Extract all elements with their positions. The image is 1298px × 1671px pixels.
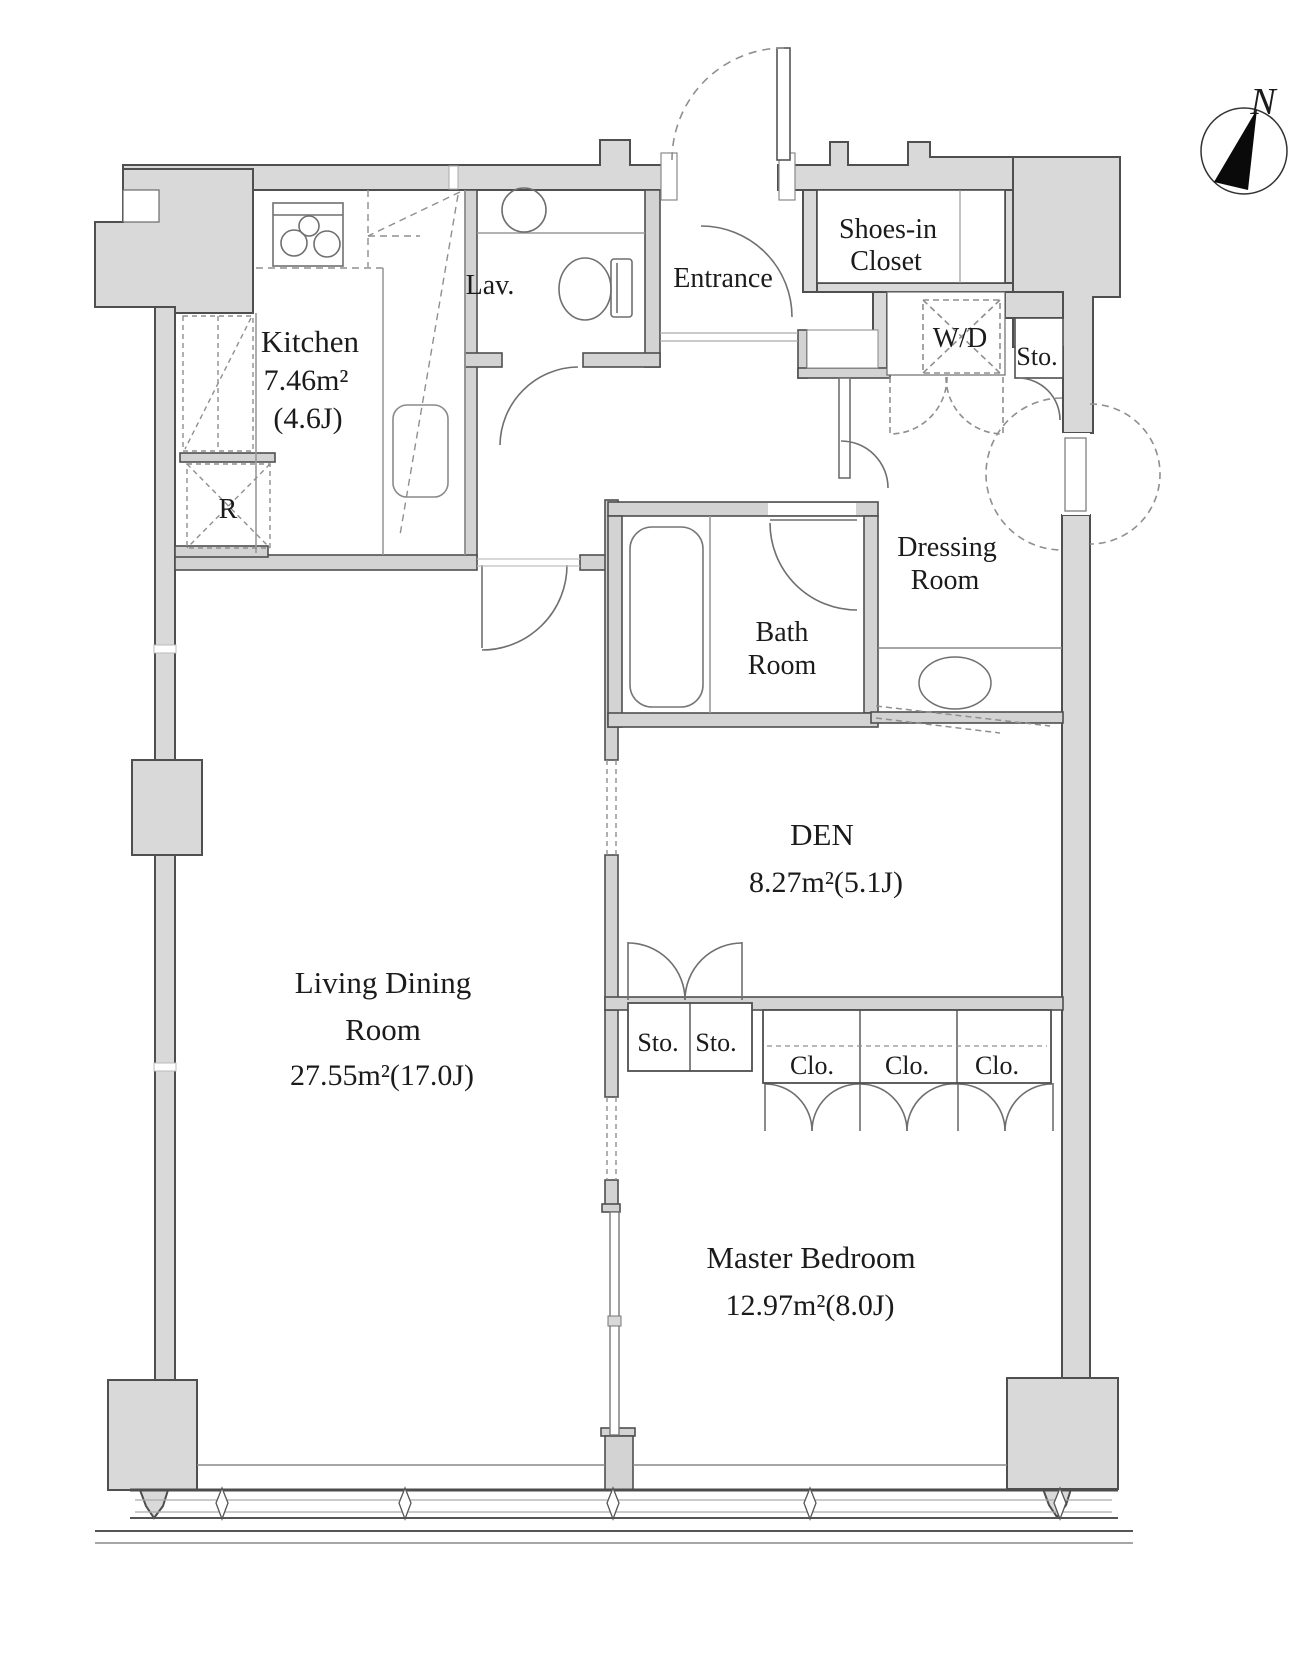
- kitchen-label: Kitchen: [261, 324, 360, 359]
- door-swing-arc: [770, 523, 857, 610]
- wall: [95, 169, 253, 313]
- wall: [1062, 515, 1090, 1378]
- door-swing-arc: [628, 943, 685, 1000]
- wall-joint: [154, 645, 176, 653]
- joint-marker: [399, 1488, 411, 1519]
- bathtub: [630, 527, 703, 707]
- shoes-closet-label-line2: Closet: [850, 246, 922, 277]
- joint-marker: [216, 1488, 228, 1519]
- hall-storage-label: Sto.: [1016, 342, 1057, 371]
- door-swing-arc: [1005, 1084, 1053, 1131]
- door-swing-arc: [1018, 378, 1060, 420]
- wall: [605, 855, 618, 1010]
- entrance-step-box: [807, 330, 878, 368]
- floor-plan-svg: N Kitchen 7.46m² (4.6J) Lav. Entrance Sh…: [0, 0, 1298, 1671]
- door-swing-arc: [946, 377, 1003, 434]
- floor-plan-image: N Kitchen 7.46m² (4.6J) Lav. Entrance Sh…: [0, 0, 1298, 1671]
- den-label: DEN: [790, 817, 854, 852]
- door-swing-arc: [482, 565, 567, 650]
- window-joint: [608, 1316, 621, 1326]
- door-swing-arc: [1090, 404, 1160, 544]
- door-swing-arc: [860, 1084, 907, 1131]
- bath-fixtures: [630, 516, 710, 713]
- door-swing-arc: [500, 367, 578, 445]
- wall: [608, 713, 878, 727]
- door-swing-arc: [765, 1084, 812, 1131]
- pillar-foot: [140, 1490, 168, 1518]
- closet-label-2: Clo.: [975, 1051, 1019, 1080]
- pillar: [132, 760, 202, 855]
- wall-notch: [123, 190, 159, 222]
- door-swing-arc: [685, 943, 742, 1000]
- room-labels: Kitchen 7.46m² (4.6J) Lav. Entrance Shoe…: [219, 214, 1058, 1322]
- wall: [803, 190, 817, 292]
- wall: [583, 353, 660, 367]
- wall: [602, 1204, 620, 1212]
- den-area: 8.27m²(5.1J): [749, 866, 903, 899]
- pillar: [1007, 1378, 1118, 1489]
- kitchen-area-m2: 7.46m²: [264, 364, 349, 397]
- joint-marker: [607, 1488, 619, 1519]
- pillar: [108, 1380, 197, 1490]
- joint-marker: [804, 1488, 816, 1519]
- master-bedroom-area: 12.97m²(8.0J): [726, 1289, 895, 1322]
- service-door-panel: [1065, 438, 1086, 511]
- compass-icon: N: [1201, 81, 1287, 194]
- panel-joint-markers: [216, 1488, 1066, 1519]
- door-swing-arc: [812, 1084, 860, 1131]
- den-storage-label-0: Sto.: [637, 1028, 678, 1057]
- wall-joint: [154, 1063, 176, 1071]
- shelf: [180, 453, 275, 462]
- closet-label-0: Clo.: [790, 1051, 834, 1080]
- pillar: [605, 1436, 633, 1490]
- living-dining-area: 27.55m²(17.0J): [290, 1059, 474, 1092]
- wall: [1005, 190, 1013, 292]
- wall: [465, 353, 502, 367]
- dressing-label-line1: Dressing: [897, 532, 997, 563]
- wall: [465, 190, 477, 560]
- toilet-tank: [611, 259, 632, 317]
- living-dining-label-line1: Living Dining: [295, 965, 472, 1000]
- wall: [864, 516, 878, 713]
- window-wall: [608, 1212, 621, 1435]
- wall-joint: [449, 166, 458, 189]
- wall: [605, 1010, 618, 1097]
- washbasin: [919, 657, 991, 709]
- door-swing-arc: [672, 48, 784, 160]
- wall: [778, 142, 1013, 190]
- door-swing-arc: [958, 1084, 1005, 1131]
- door-swing-arc: [907, 1084, 958, 1131]
- kitchen-area-j: (4.6J): [273, 402, 342, 435]
- wall: [1005, 292, 1063, 318]
- wall: [645, 190, 660, 367]
- lavatory-label: Lav.: [466, 270, 515, 301]
- bath-door-opening: [768, 503, 856, 515]
- den-storage-label-1: Sto.: [695, 1028, 736, 1057]
- wall: [155, 855, 175, 1380]
- toilet-bowl: [559, 258, 611, 320]
- wall: [817, 283, 1013, 292]
- lavatory-sink: [502, 188, 546, 232]
- thin-wall: [839, 378, 850, 478]
- thresholds: [477, 333, 798, 566]
- dressing-label-line2: Room: [911, 565, 980, 596]
- living-dining-label-line2: Room: [345, 1012, 421, 1047]
- closet-label-1: Clo.: [885, 1051, 929, 1080]
- door-jamb: [661, 153, 677, 200]
- washer-dryer-label: W/D: [933, 323, 987, 354]
- compass-north-label: N: [1249, 81, 1278, 123]
- master-bedroom-label: Master Bedroom: [706, 1240, 915, 1275]
- wall: [608, 516, 622, 727]
- door-swing-arc: [890, 377, 947, 434]
- entrance-door-leaf: [777, 48, 790, 160]
- bath-label-line1: Bath: [756, 617, 809, 648]
- entrance-label: Entrance: [673, 263, 773, 294]
- bath-label-line2: Room: [748, 650, 817, 681]
- kitchen-sink: [393, 405, 448, 497]
- refrigerator-label: R: [219, 494, 238, 525]
- shoes-closet-label-line1: Shoes-in: [839, 214, 937, 245]
- wall: [155, 307, 175, 760]
- dashed-line: [368, 192, 460, 236]
- wall: [798, 368, 890, 378]
- door-swing-arc: [986, 398, 1062, 550]
